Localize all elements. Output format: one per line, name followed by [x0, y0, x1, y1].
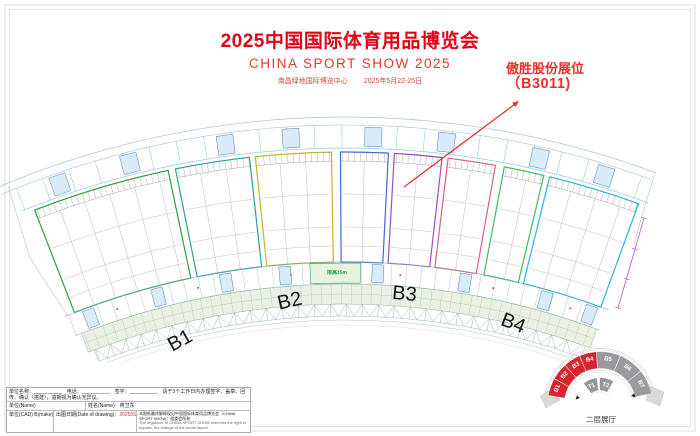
titleblock-date-value: 2025/02/22 15:12 [119, 412, 136, 418]
titleblock-note: 本图纸最终解释权归中国国际体育用品博览会（CHINA SPORT SHOW）组委… [136, 411, 250, 432]
floor-plan-drawing [0, 117, 656, 362]
hall-label-b3: B3 [391, 282, 417, 306]
minimap-caption: 二层展厅 [586, 415, 616, 424]
titleblock-signoff-row: 单位名称：__________ 电话：__________ 签字：_______… [7, 388, 250, 401]
titleblock-unit-label: 单位(Name) [7, 402, 85, 410]
titleblock-date: 出图日期(Date of drawing)：2025/02/22 15:12 [53, 411, 136, 432]
title-block: 单位名称：__________ 电话：__________ 签字：_______… [6, 387, 251, 433]
titleblock-name: 姓名(Name)：蒋卫东 [85, 402, 250, 410]
titleblock-date-label: 出图日期(Date of drawing)： [56, 412, 119, 418]
titleblock-note-en: The organizer of CHINA SPORT SHOW reserv… [139, 421, 248, 431]
minimap-drawing [540, 348, 664, 408]
walkway-height-label: 限高15m [327, 269, 348, 276]
overview-minimap: B1 B2 B3 B4 B5 B6 B7 T1 T2 二层展厅 [538, 346, 668, 430]
page: 2025中国国际体育用品博览会 CHINA SPORT SHOW 2025 南昌… [0, 0, 700, 436]
titleblock-cad-label: 单位(CAD) B(make) [7, 411, 53, 432]
